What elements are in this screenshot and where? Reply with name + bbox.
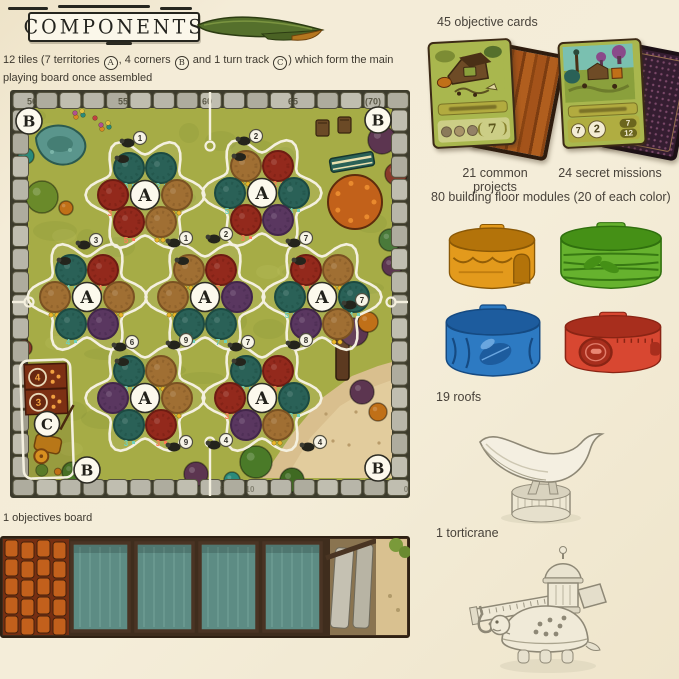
svg-text:6: 6 <box>130 338 135 347</box>
module-red <box>556 308 670 376</box>
svg-text:A: A <box>254 389 269 409</box>
secret-mission-card-front: 7 2 7 12 <box>557 38 646 149</box>
svg-text:A: A <box>254 184 269 204</box>
corner-badge-B: B <box>365 455 391 481</box>
territory-badge-A: A <box>131 384 160 413</box>
svg-text:2: 2 <box>254 132 259 141</box>
banner-dash <box>8 7 48 10</box>
svg-text:7: 7 <box>360 296 365 305</box>
turn-track-number: 50 <box>27 97 37 107</box>
svg-text:B: B <box>23 113 36 131</box>
corner-badge-B: B <box>16 108 42 134</box>
svg-text:A: A <box>197 288 212 308</box>
svg-text:A: A <box>79 288 94 308</box>
turn-track-number: 65 <box>288 97 298 107</box>
circle-value: 3 <box>225 412 230 421</box>
svg-text:A: A <box>137 389 152 409</box>
secret-mission-cards: 7 2 7 12 <box>560 38 679 164</box>
circle-value: 4 <box>66 338 71 347</box>
turn-track-value: 4 <box>35 373 41 384</box>
territory-badge-A: A <box>248 384 277 413</box>
card-illustration <box>563 43 636 103</box>
turn-track-number: (70) <box>365 97 381 107</box>
card-name-plate <box>437 100 508 116</box>
territory-badge-A: A <box>191 283 220 312</box>
svg-text:4: 4 <box>224 436 229 445</box>
circle-value: 3 <box>156 439 161 448</box>
torticrane-heading: 1 torticrane <box>436 526 499 540</box>
territory-badge-A: A <box>248 179 277 208</box>
card-illustration <box>433 43 506 103</box>
svg-text:A: A <box>137 186 152 206</box>
common-project-card-front: 7 <box>427 38 516 149</box>
turn-track-number: 5 <box>220 485 225 494</box>
svg-text:B: B <box>372 112 385 130</box>
module-green <box>551 218 671 292</box>
common-project-cards: 7 <box>430 38 560 164</box>
corner-letter-badge: B <box>175 56 189 70</box>
circle-value: 5 <box>225 207 230 216</box>
svg-text:1: 1 <box>184 234 189 243</box>
svg-text:3: 3 <box>94 236 99 245</box>
turntrack-letter-badge: C <box>273 56 287 70</box>
turn-track-number: 10 <box>246 485 255 494</box>
circle-value: 3 <box>108 209 113 218</box>
turn-track-value: 3 <box>35 398 41 409</box>
card-score-laurel: 7 <box>478 121 508 137</box>
secret-missions-caption: 24 secret missions <box>554 166 666 180</box>
turn-track-number: 55 <box>118 97 128 107</box>
circle-value: 5 <box>285 311 290 320</box>
territory-badge-A: A <box>73 283 102 312</box>
svg-text:2: 2 <box>224 230 229 239</box>
objectives-board-label: 1 objectives board <box>3 512 92 524</box>
module-orange <box>441 220 543 292</box>
circle-value: 3 <box>241 234 246 243</box>
banner-dash <box>160 7 192 10</box>
svg-text:B: B <box>372 460 385 478</box>
leaf-decoration-icon <box>196 9 328 45</box>
territory-letter-badge: A <box>104 56 118 70</box>
svg-text:9: 9 <box>184 336 189 345</box>
module-blue <box>437 300 549 380</box>
components-banner: COMPONENTS <box>28 12 200 42</box>
modules-heading: 80 building floor modules (20 of each co… <box>431 190 671 204</box>
corner-badge-B: B <box>365 107 391 133</box>
rulebook-page: COMPONENTS 12 tiles (7 territories A, 4 … <box>0 0 679 679</box>
circle-value: 7 <box>216 338 221 347</box>
svg-text:C: C <box>41 416 53 434</box>
turn-track-badge-C: C <box>35 412 60 437</box>
page-title: COMPONENTS <box>24 15 205 38</box>
svg-text:A: A <box>314 288 329 308</box>
svg-text:1: 1 <box>138 134 143 143</box>
banner-dash <box>106 42 132 45</box>
territory-badge-A: A <box>131 181 160 210</box>
roof-piece <box>466 406 614 526</box>
card-values: 7 <box>437 117 510 143</box>
banner-dash <box>58 5 150 8</box>
main-playing-board: 50556065(70)51003235A2543A444A537A354A33… <box>10 90 410 498</box>
svg-text:7: 7 <box>304 234 309 243</box>
svg-text:8: 8 <box>304 336 309 345</box>
corner-badge-B: B <box>74 457 100 483</box>
intro-text: 12 tiles (7 territories A, 4 corners B a… <box>3 52 419 87</box>
svg-text:9: 9 <box>184 438 189 447</box>
torticrane-figure <box>466 540 616 678</box>
svg-text:B: B <box>81 462 94 480</box>
svg-text:7: 7 <box>246 338 251 347</box>
objectives-board <box>0 536 410 638</box>
svg-text:4: 4 <box>318 438 323 447</box>
territory-badge-A: A <box>308 283 337 312</box>
turn-track-number: 0 <box>404 485 409 494</box>
roofs-heading: 19 roofs <box>436 390 481 404</box>
circle-value: 5 <box>124 236 129 245</box>
objective-cards-heading: 45 objective cards <box>437 15 538 29</box>
circle-value: 3 <box>124 439 129 448</box>
card-values: 7 2 7 12 <box>567 115 640 143</box>
